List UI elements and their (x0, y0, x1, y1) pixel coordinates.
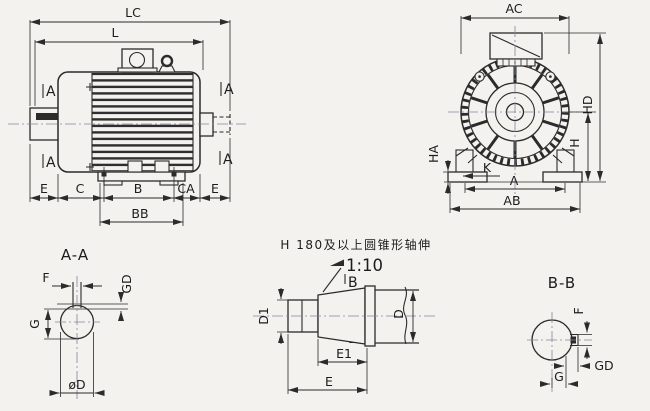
dim-label-h: H (567, 138, 582, 147)
side-view: A A A A LC L E C B CA E BB (8, 5, 246, 226)
shaft-right-hidden (213, 114, 231, 135)
drawing-sheet: A A A A LC L E C B CA E BB (0, 0, 650, 411)
section-bb-title: B-B (548, 274, 576, 292)
dim-label-d1: D1 (256, 307, 271, 325)
dim-label-k: K (483, 160, 492, 175)
dim-label-b: B (134, 181, 143, 196)
cone-shaft-view: H 180及以上圆锥形轴伸 1:10 B B D1 D E1 (253, 237, 436, 394)
dim-label-l: L (112, 25, 119, 40)
dim-label-gd-bb: GD (594, 358, 613, 373)
cooling-fins (92, 73, 193, 171)
shaft-key (36, 113, 58, 120)
taper-ratio: 1:10 (346, 256, 383, 275)
dim-label-od-aa: øD (68, 377, 85, 392)
section-aa-title: A-A (61, 246, 89, 264)
foot-hole-left (102, 172, 107, 177)
dim-label-f-bb: F (571, 307, 586, 314)
shaft-right-stub (200, 113, 213, 136)
section-a-marker: A (46, 84, 56, 100)
taper-symbol-icon (330, 260, 344, 267)
section-a-marker: A (46, 155, 56, 171)
foot-hole-right (172, 172, 177, 177)
section-aa-view: A-A F GD G øD (27, 246, 134, 399)
motor-dimension-drawing: A A A A LC L E C B CA E BB (0, 0, 650, 411)
dim-label-lc: LC (125, 5, 141, 20)
dim-label-ca: CA (177, 181, 195, 196)
dim-label-e-right: E (211, 181, 219, 196)
dim-label-g-aa: G (27, 319, 42, 329)
dim-label-hd: HD (580, 95, 595, 114)
dim-label-bb: BB (131, 206, 148, 221)
lifting-eyebolt (162, 56, 172, 66)
dim-label-a: A (510, 173, 519, 188)
conical-shaft-note: H 180及以上圆锥形轴伸 (280, 237, 431, 252)
dim-label-ha: HA (426, 145, 441, 163)
section-b-marker: B (348, 275, 358, 291)
dim-label-ab: AB (503, 193, 520, 208)
dim-label-e-left: E (40, 181, 48, 196)
dim-label-e1: E1 (336, 346, 352, 361)
section-a-marker: A (223, 152, 233, 168)
dim-label-d: D (391, 309, 406, 319)
dim-label-ac: AC (505, 1, 522, 16)
dim-label-f-aa: F (42, 270, 49, 285)
dim-label-gd-aa: GD (119, 274, 134, 293)
front-view: AC A AB H HD HA K (426, 1, 606, 213)
dim-label-c: C (76, 181, 85, 196)
dim-label-e-cone: E (325, 374, 333, 389)
dim-label-g-bb: G (554, 369, 564, 384)
section-a-marker: A (224, 82, 234, 98)
section-bb-view: B-B F GD G (527, 274, 614, 392)
